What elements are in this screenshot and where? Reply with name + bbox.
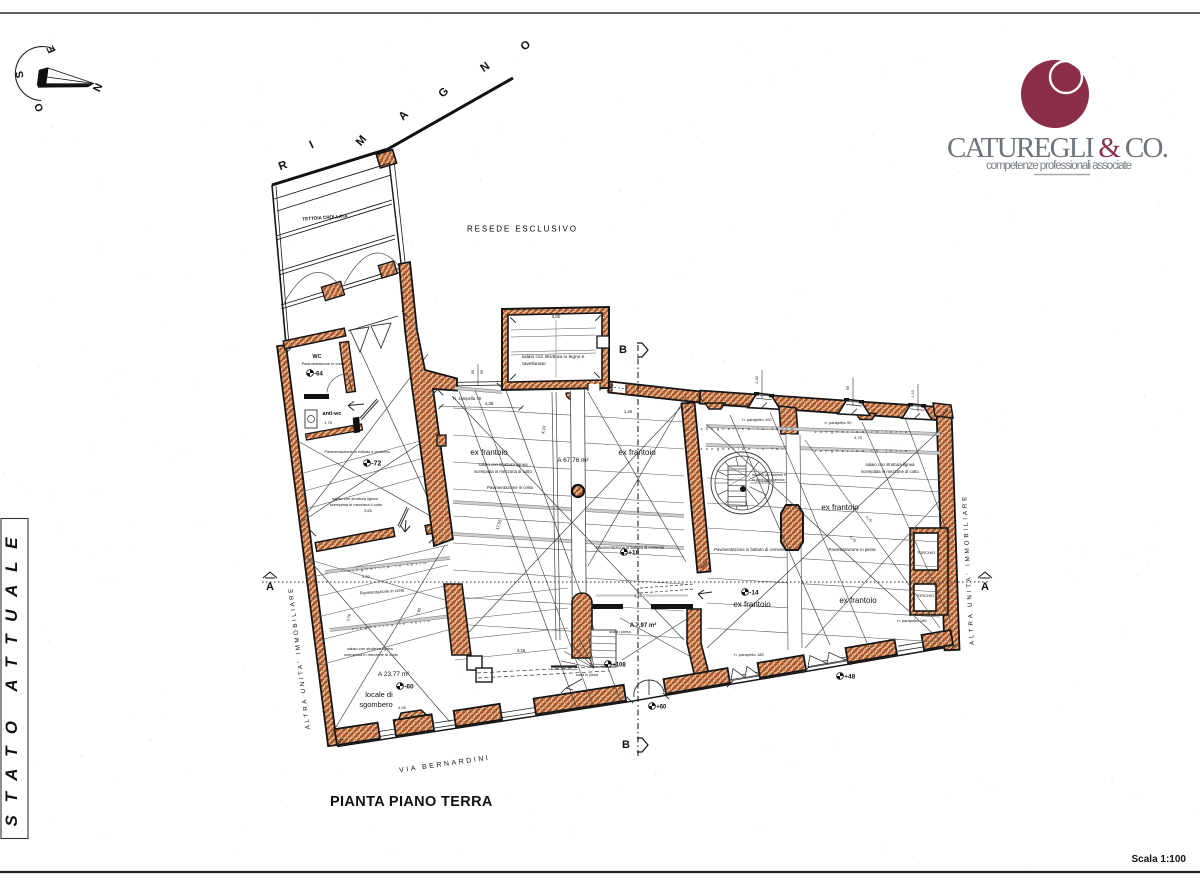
svg-text:TORCHIO: TORCHIO [916,593,934,598]
svg-text:90: 90 [480,370,484,374]
svg-text:TORCHIO: TORCHIO [917,550,935,555]
svg-text:scempiata in mezzana di cotto: scempiata in mezzana di cotto [474,469,532,474]
svg-text:N. zampella 78: N. zampella 78 [453,396,482,401]
svg-text:macina per frantoio ritiro: macina per frantoio ritiro [752,473,791,477]
svg-text:Pavimentazione in pietra: Pavimentazione in pietra [828,547,876,552]
svg-text:+60: +60 [656,705,667,711]
svg-text:salaio con struttura in legno: salaio con struttura in legno e [522,354,585,360]
svg-text:h. parapetto 185: h. parapetto 185 [734,652,764,657]
svg-text:zungherina in ferro: zungherina in ferro [815,430,910,434]
svg-text:salaio con struttura lignea: salaio con struttura lignea [866,462,916,467]
svg-text:ex frantoio: ex frantoio [733,600,771,609]
svg-text:+48: +48 [844,674,855,681]
svg-text:zungherina in ferro: zungherina in ferro [701,447,796,451]
svg-text:3,00: 3,00 [552,314,561,319]
svg-text:3,26: 3,26 [517,648,526,653]
svg-text:4,38: 4,38 [485,401,494,406]
svg-text:P. zampello 103: P. zampello 103 [721,402,750,407]
svg-text:Pavimentazione in battuto di c: Pavimentazione in battuto di cemento [596,545,665,550]
svg-text:-64: -64 [314,372,323,378]
svg-text:zungherina in ferro: zungherina in ferro [701,427,796,431]
svg-text:4,75: 4,75 [854,435,863,440]
svg-text:scempiata in mezzana il cotto: scempiata in mezzana il cotto [330,502,383,507]
svg-text:ex frantoio: ex frantoio [618,448,656,457]
svg-text:2,30: 2,30 [755,376,759,383]
svg-text:-60: -60 [404,684,414,691]
svg-text:PIANTA PIANO TERRA: PIANTA PIANO TERRA [330,794,494,810]
svg-text:salaio con struttura lignea: salaio con struttura lignea [479,462,529,467]
svg-text:WC: WC [312,354,321,360]
svg-text:90: 90 [846,386,850,390]
svg-text:A: A [266,581,274,593]
svg-text:RESEDE ESCLUSIVO: RESEDE ESCLUSIVO [467,225,577,234]
svg-text:+108: +108 [612,663,626,669]
svg-text:scempiata in mezzane di cotto: scempiata in mezzane di cotto [861,469,919,474]
svg-text:Pavimentazione in creta: Pavimentazione in creta [302,361,345,366]
svg-text:A: A [981,581,989,593]
svg-text:4,95: 4,95 [398,705,407,710]
svg-text:salaio con struttura lignea: salaio con struttura lignea [332,496,378,501]
svg-text:ex frantoio: ex frantoio [470,448,508,457]
svg-text:3,65: 3,65 [364,508,373,513]
svg-text:-72: -72 [371,461,381,468]
svg-text:50: 50 [471,370,475,374]
svg-text:A 23,77 m²: A 23,77 m² [378,671,410,678]
svg-text:sgombero: sgombero [359,700,392,709]
svg-text:zungherina in ferro: zungherina in ferro [815,449,910,453]
svg-text:1,45: 1,45 [624,409,633,414]
svg-text:Pavimentazione in creta: Pavimentazione in creta [487,485,533,490]
svg-text:tavellonato: tavellonato [522,361,546,367]
svg-text:1,75: 1,75 [324,420,333,425]
svg-text:h. parapetto 90: h. parapetto 90 [825,420,853,425]
svg-text:h. parapetto 185: h. parapetto 185 [897,618,927,623]
svg-text:Pavimentazione in battuto di c: Pavimentazione in battuto di cemento [714,547,786,552]
svg-text:h. parapetto 102: h. parapetto 102 [742,417,772,422]
svg-text:1,10: 1,10 [911,390,915,397]
svg-text:Pavimentazione in battuto il c: Pavimentazione in battuto il cemento [324,449,390,454]
svg-text:ex frantoio: ex frantoio [839,596,877,605]
svg-text:Scala 1:100: Scala 1:100 [1132,854,1187,865]
svg-text:B: B [619,344,627,356]
svg-text:scala in pietra: scala in pietra [576,673,598,677]
svg-text:competenze professionali assoc: competenze professionali associate [986,160,1132,172]
svg-text:-14: -14 [749,590,759,597]
svg-text:ex frantoio: ex frantoio [821,503,859,512]
svg-text:A 67,76 m²: A 67,76 m² [557,457,589,464]
svg-text:B: B [622,739,630,751]
svg-text:scala i pietra: scala i pietra [609,630,631,634]
svg-text:locale di: locale di [365,690,393,699]
svg-text:anti-wc: anti-wc [323,411,342,417]
